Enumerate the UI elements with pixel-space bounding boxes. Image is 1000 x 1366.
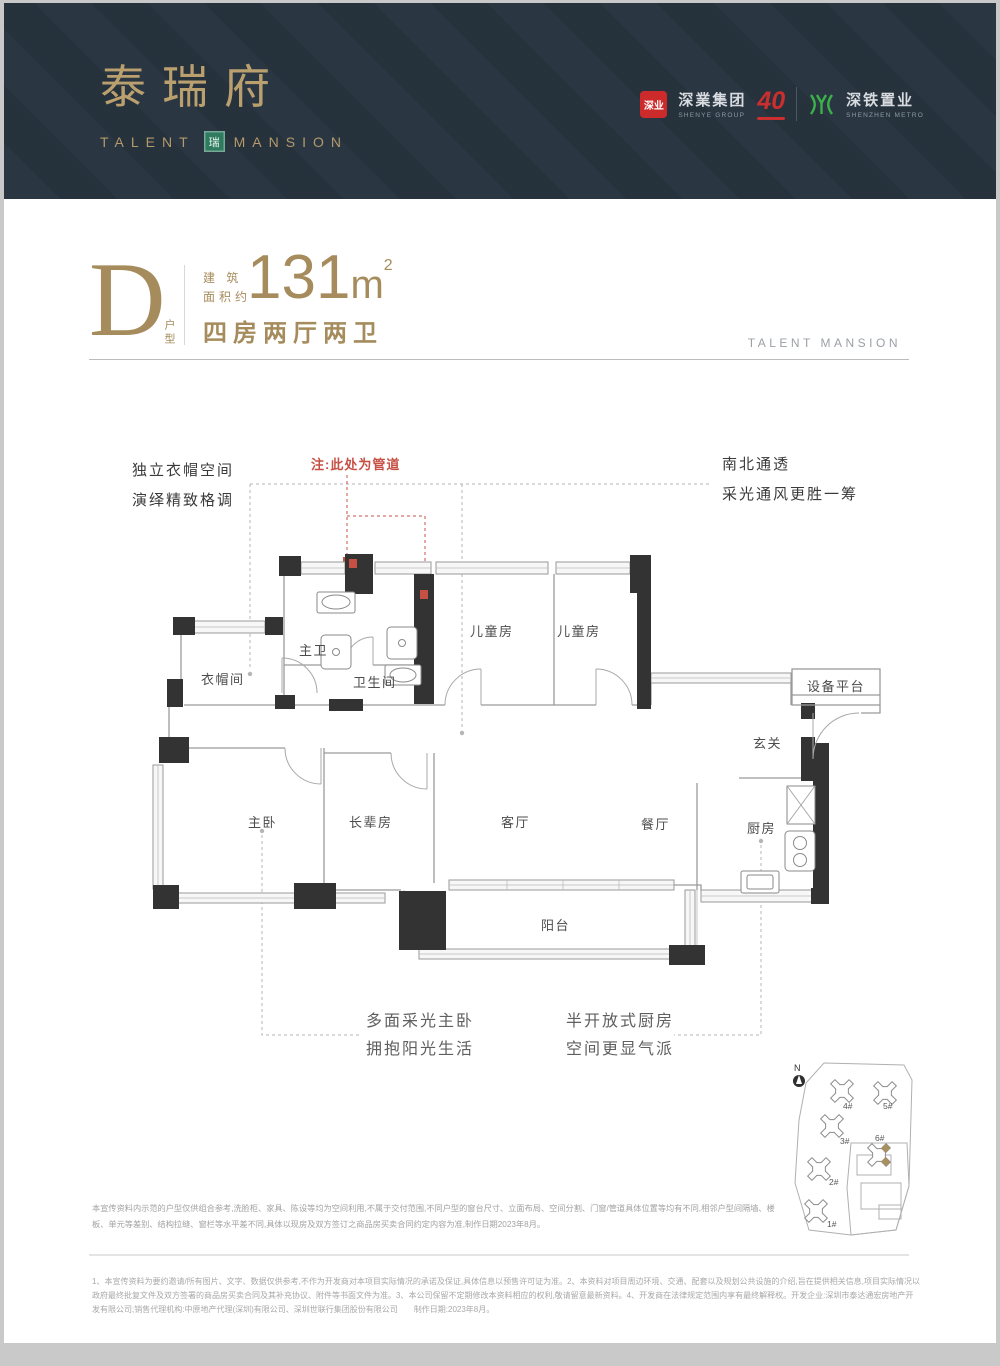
room-kids-2: 儿童房 [557, 624, 601, 639]
room-elder: 长辈房 [349, 815, 393, 830]
area-number: 131 [247, 243, 350, 312]
room-equipment: 设备平台 [807, 679, 865, 694]
disclaimer-primary: 本宣传资料内示范的户型仅供组合参考,洗脸柜、家具、陈设等均为空间利用,不属于交付… [92, 1201, 782, 1232]
site-plan: N [793, 1063, 912, 1235]
annotation-master-2: 拥抱阳光生活 [366, 1040, 474, 1058]
unit-layout: 四房两厅两卫 [203, 313, 383, 348]
shenye-group-logo: 深業集团 SHENYE GROUP [678, 89, 746, 119]
annotation-pipe: 注:此处为管道 [311, 457, 400, 472]
north-label: N [794, 1063, 801, 1073]
annotation-ns-2: 采光通风更胜一筹 [722, 486, 858, 503]
area-prefix-line2: 面积约 [203, 288, 251, 307]
anniversary-number: 40 [757, 89, 785, 114]
disclaimer-secondary: 1、本宣传资料为要约邀请/所有图片、文字、数据仅供参考,不作为开发商对本项目实际… [92, 1275, 920, 1317]
room-kids-1: 儿童房 [470, 624, 514, 639]
annotation-ns-1: 南北通透 [722, 456, 790, 473]
building-6-label: 6# [875, 1133, 885, 1143]
building-2-label: 2# [829, 1177, 839, 1187]
header: 泰瑞府 TALENT 瑞 MANSION 深业 深業集团 SHENYE GROU… [4, 3, 996, 199]
area-sup: 2 [384, 257, 393, 274]
brand-en-right: MANSION [234, 134, 348, 150]
annotation-master-1: 多面采光主卧 [366, 1012, 474, 1030]
room-living: 客厅 [501, 815, 530, 830]
section-rule [89, 359, 909, 360]
building-3-label: 3# [840, 1136, 850, 1146]
floorplan-figure: 独立衣帽空间 演绎精致格调 注:此处为管道 南北通透 采光通风更胜一筹 多面采光… [89, 443, 919, 1263]
partner-divider [796, 87, 797, 121]
shenye-cn: 深業集团 [678, 89, 746, 110]
unit-type-letter: D [89, 247, 166, 353]
room-foyer: 玄关 [753, 736, 782, 751]
unit-divider [184, 265, 185, 345]
windows [153, 562, 813, 959]
partner-logos: 深业 深業集团 SHENYE GROUP 40 深铁置业 SHENZHEN ME… [640, 87, 924, 121]
annotation-cloak-1: 独立衣帽空间 [132, 462, 234, 479]
building-5-label: 5# [883, 1101, 893, 1111]
area-value: 131m2 [247, 247, 393, 309]
room-master-bath: 主卫 [299, 643, 328, 658]
compass-icon [793, 1075, 805, 1087]
building-4 [824, 1073, 861, 1110]
brand-name-en: TALENT 瑞 MANSION [100, 131, 348, 152]
doors [282, 637, 859, 789]
annotation-cloak-2: 演绎精致格调 [132, 492, 234, 509]
brochure-page: 泰瑞府 TALENT 瑞 MANSION 深业 深業集团 SHENYE GROU… [4, 3, 996, 1343]
shenye-en: SHENYE GROUP [678, 112, 746, 119]
metro-cn: 深铁置业 [846, 89, 924, 110]
room-bathroom: 卫生间 [353, 675, 397, 690]
building-1-label: 1# [827, 1219, 837, 1229]
area-prefix-line1: 建 筑 [203, 269, 251, 288]
room-cloakroom: 衣帽间 [201, 672, 245, 687]
annotation-kitchen-2: 空间更显气派 [566, 1040, 674, 1058]
brand-seal-icon: 瑞 [204, 131, 225, 152]
room-master-bedroom: 主卧 [248, 815, 277, 830]
annotation-kitchen-1: 半开放式厨房 [566, 1012, 674, 1030]
talent-mansion-watermark: TALENT MANSION [748, 336, 901, 350]
shenye-badge-icon: 深业 [640, 91, 667, 118]
room-balcony: 阳台 [541, 918, 570, 933]
building-4-label: 4# [843, 1101, 853, 1111]
anniversary-40-logo: 40 [757, 89, 785, 120]
brand-name-cn: 泰瑞府 [100, 51, 348, 117]
area-unit: m2 [350, 263, 392, 307]
room-kitchen: 厨房 [747, 821, 776, 836]
brand-en-left: TALENT [100, 134, 195, 150]
area-prefix: 建 筑 面积约 [203, 269, 251, 307]
brand-logo: 泰瑞府 TALENT 瑞 MANSION [100, 51, 348, 152]
metro-logo-text: 深铁置业 SHENZHEN METRO [846, 89, 924, 119]
metro-logo-icon [808, 91, 835, 118]
room-dining: 餐厅 [641, 817, 670, 832]
unit-type-label: 户型 [161, 319, 177, 347]
anniversary-underline [757, 117, 785, 120]
metro-en: SHENZHEN METRO [846, 112, 924, 119]
